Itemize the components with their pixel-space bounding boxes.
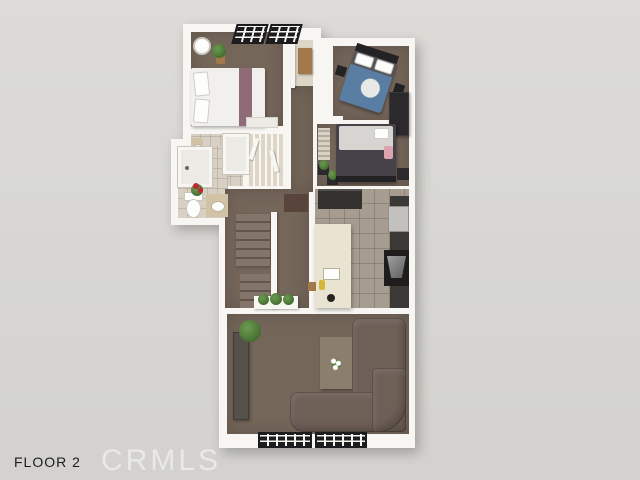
stair-railing [291,44,295,88]
kitchen-island [315,224,351,308]
yellow-flowers [319,280,325,290]
floorplan [0,0,640,480]
red-flower-bloom [198,188,203,193]
refrigerator [388,206,409,232]
floor-label: FLOOR 2 [14,454,81,470]
hall-rug [284,194,308,212]
island-sink [323,268,340,280]
plant [270,293,282,305]
bench-slatted [318,128,330,160]
media-console [233,332,249,420]
stool [308,282,316,291]
bed-3-footboard [336,176,396,182]
vanity [206,194,228,217]
dresser-wood [298,48,312,74]
wall-stub [317,116,343,124]
plant [258,294,269,305]
bed-3-pink-pillow [384,146,393,159]
round-plant [239,320,261,342]
plant [283,294,294,305]
stove [384,250,409,286]
shower [178,147,212,187]
floorplan-image: FLOOR 2 CRMLS [0,0,640,480]
sink [211,201,225,212]
range-hood [387,256,406,278]
window [265,24,302,44]
plant [212,44,226,58]
toilet [186,199,201,218]
stairs-upper-flight [236,214,270,266]
window [231,24,268,44]
nightstand [397,168,409,180]
bowl [327,294,335,302]
shower [223,134,249,174]
coffee-table [320,337,352,389]
upper-corridor-floor [291,86,313,192]
bed-1-pillow [193,98,210,123]
bed-3-pillow [374,128,389,139]
dresser-white [246,117,278,128]
table-flowers-white [330,357,342,371]
window [315,432,367,448]
bed-1-pillow [193,71,210,96]
plant [319,160,329,170]
window [258,432,312,448]
crmls-watermark: CRMLS [101,444,221,478]
shower-drain [185,166,189,170]
mirror [193,37,211,55]
bed-3-dark [336,124,396,182]
kitchen-cabinet-dark [318,189,362,209]
